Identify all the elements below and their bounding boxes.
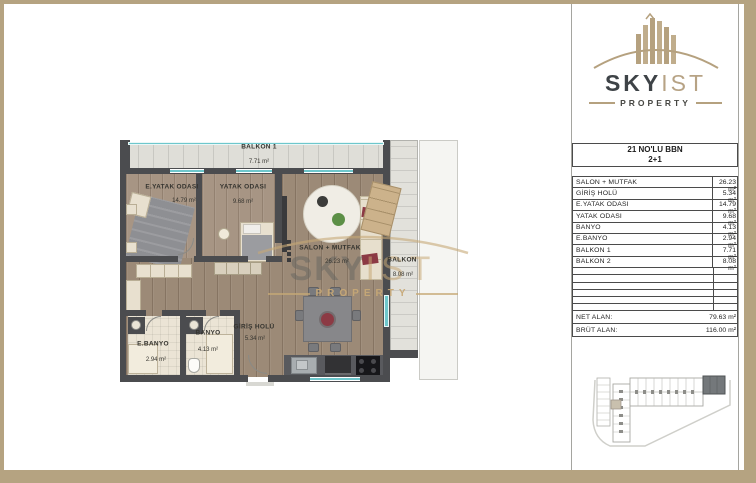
row-value: 7.71 m² bbox=[712, 245, 737, 255]
window bbox=[236, 169, 272, 173]
table-empty-row bbox=[573, 268, 737, 275]
brand-rule bbox=[696, 102, 722, 104]
burner bbox=[359, 359, 364, 364]
row-value: 4.13 m² bbox=[712, 223, 737, 233]
brand-rule bbox=[589, 102, 615, 104]
row-value: 14.79 m² bbox=[712, 200, 737, 210]
wall bbox=[275, 171, 282, 243]
table-row: YATAK ODASI9.68 m² bbox=[573, 211, 737, 222]
nightstand bbox=[126, 242, 137, 253]
wall bbox=[120, 375, 248, 382]
round-rug bbox=[303, 185, 361, 243]
shelf bbox=[287, 240, 291, 244]
row-label: SALON + MUTFAK bbox=[573, 177, 712, 187]
row-value: 8.08 m² bbox=[712, 257, 737, 267]
table-empty-row bbox=[573, 283, 737, 290]
row-label: BALKON 1 bbox=[573, 245, 712, 255]
room-area-eyatak: 14.79 m² bbox=[172, 198, 196, 204]
window bbox=[304, 169, 353, 173]
row-label: BANYO bbox=[573, 223, 712, 233]
neighbor-balcony bbox=[419, 140, 458, 380]
row-label: BALKON 2 bbox=[573, 257, 712, 267]
net-area-row: NET ALAN:79.63 m² bbox=[573, 311, 737, 324]
hall-wardrobe bbox=[126, 280, 141, 314]
wall bbox=[266, 256, 282, 262]
room-label-salon: SALON + MUTFAK bbox=[299, 245, 360, 252]
room-area-salon: 26.23 m² bbox=[325, 259, 349, 265]
brand-logo: SKYIST PROPERTY bbox=[572, 10, 739, 108]
row-value: 9.68 m² bbox=[712, 211, 737, 221]
burner bbox=[371, 368, 376, 373]
entry-step bbox=[246, 382, 274, 386]
gross-area-value: 116.00 m² bbox=[702, 324, 737, 336]
table-row: BANYO4.13 m² bbox=[573, 223, 737, 234]
plant bbox=[332, 213, 345, 226]
table-row: BALKON 28.08 m² bbox=[573, 257, 737, 268]
table-empty-row bbox=[573, 304, 737, 311]
table-row: GİRİŞ HOLÜ5.34 m² bbox=[573, 188, 737, 199]
chair bbox=[330, 343, 341, 352]
row-value: 26.23 m² bbox=[712, 177, 737, 187]
washbasin bbox=[189, 320, 199, 330]
nightstand bbox=[126, 204, 137, 215]
wardrobe bbox=[136, 264, 192, 278]
room-label-eyatak: E.YATAK ODASI bbox=[145, 184, 198, 191]
washbasin bbox=[131, 320, 141, 330]
room-area-balkon2: 8.08 m² bbox=[393, 272, 413, 278]
unit-title: 21 NO'LU BBN bbox=[573, 145, 737, 155]
window bbox=[170, 169, 204, 173]
gross-area-row: BRÜT ALAN:116.00 m² bbox=[573, 324, 737, 336]
floorplan: BALKON 1 7.71 m² E.YATAK ODASI 14.79 m² … bbox=[120, 138, 460, 386]
row-label: E.BANYO bbox=[573, 234, 712, 244]
room-area-balkon1: 7.71 m² bbox=[249, 159, 269, 165]
wall bbox=[202, 256, 248, 262]
chair bbox=[308, 343, 319, 352]
net-area-label: NET ALAN: bbox=[573, 311, 706, 323]
wall bbox=[126, 310, 146, 316]
oven bbox=[325, 356, 351, 375]
plant-pot bbox=[317, 196, 328, 207]
floorplan-sheet: BALKON 1 7.71 m² E.YATAK ODASI 14.79 m² … bbox=[0, 0, 756, 483]
round-stool bbox=[218, 228, 230, 240]
room-area-yatak: 9.68 m² bbox=[233, 199, 253, 205]
shelf bbox=[287, 246, 291, 250]
unit-type: 2+1 bbox=[573, 155, 737, 165]
gross-area-label: BRÜT ALAN: bbox=[573, 324, 702, 336]
wall bbox=[120, 168, 126, 382]
chair bbox=[308, 287, 319, 296]
shelf bbox=[287, 252, 291, 256]
bed-pillow bbox=[243, 224, 261, 234]
table-row: SALON + MUTFAK26.23 m² bbox=[573, 177, 737, 188]
unit-title-box: 21 NO'LU BBN 2+1 bbox=[572, 143, 738, 167]
balcony-door-glass bbox=[384, 295, 389, 327]
balcony2-floor bbox=[390, 140, 418, 352]
brand-ist: IST bbox=[661, 70, 706, 96]
row-label: E.YATAK ODASI bbox=[573, 200, 712, 210]
brand-sky: SKY bbox=[605, 70, 661, 96]
net-area-value: 79.63 m² bbox=[706, 311, 737, 323]
shower bbox=[206, 334, 233, 374]
frame-top bbox=[0, 0, 756, 4]
room-label-ebanyo: E.BANYO bbox=[137, 341, 169, 348]
area-table: SALON + MUTFAK26.23 m² GİRİŞ HOLÜ5.34 m²… bbox=[572, 176, 738, 337]
table-row: E.BANYO2.94 m² bbox=[573, 234, 737, 245]
room-label-balkon1: BALKON 1 bbox=[241, 144, 277, 151]
brand-property-row: PROPERTY bbox=[572, 98, 739, 108]
dresser bbox=[214, 262, 262, 275]
site-highlighted-unit bbox=[703, 376, 725, 394]
table-centerpiece bbox=[321, 313, 334, 326]
frame-left bbox=[0, 0, 4, 483]
room-label-yatak: YATAK ODASI bbox=[220, 184, 267, 191]
table-row: BALKON 17.71 m² bbox=[573, 245, 737, 256]
toilet bbox=[188, 358, 200, 373]
row-value: 2.94 m² bbox=[712, 234, 737, 244]
table-empty-row bbox=[573, 290, 737, 297]
frame-right bbox=[744, 0, 756, 483]
room-area-giris: 5.34 m² bbox=[245, 336, 265, 342]
room-label-balkon2: BALKON bbox=[387, 257, 417, 264]
table-empty-row bbox=[573, 297, 737, 304]
frame-bottom bbox=[0, 470, 756, 483]
wall bbox=[120, 256, 178, 262]
wall bbox=[180, 310, 186, 375]
wall bbox=[390, 350, 418, 358]
brand-wordmark: SKYIST bbox=[572, 71, 739, 95]
burner bbox=[371, 359, 376, 364]
room-area-ebanyo: 2.94 m² bbox=[146, 357, 166, 363]
row-label: GİRİŞ HOLÜ bbox=[573, 188, 712, 198]
wall bbox=[194, 256, 202, 262]
room-label-giris: GİRİŞ HOLÜ bbox=[234, 324, 275, 331]
chair bbox=[330, 287, 341, 296]
sink-basin bbox=[296, 360, 308, 370]
room-label-banyo: BANYO bbox=[196, 330, 221, 337]
room-area-banyo: 4.13 m² bbox=[198, 347, 218, 353]
shelf bbox=[287, 258, 291, 262]
table-row: E.YATAK ODASI14.79 m² bbox=[573, 200, 737, 211]
building-icon bbox=[586, 10, 726, 72]
site-key-plan bbox=[583, 368, 741, 466]
wall bbox=[234, 310, 240, 375]
brand-property: PROPERTY bbox=[620, 98, 691, 108]
window bbox=[310, 377, 360, 381]
chair bbox=[352, 310, 361, 321]
burner bbox=[359, 368, 364, 373]
row-label: YATAK ODASI bbox=[573, 211, 712, 221]
table-empty-row bbox=[573, 275, 737, 282]
row-value: 5.34 m² bbox=[712, 188, 737, 198]
